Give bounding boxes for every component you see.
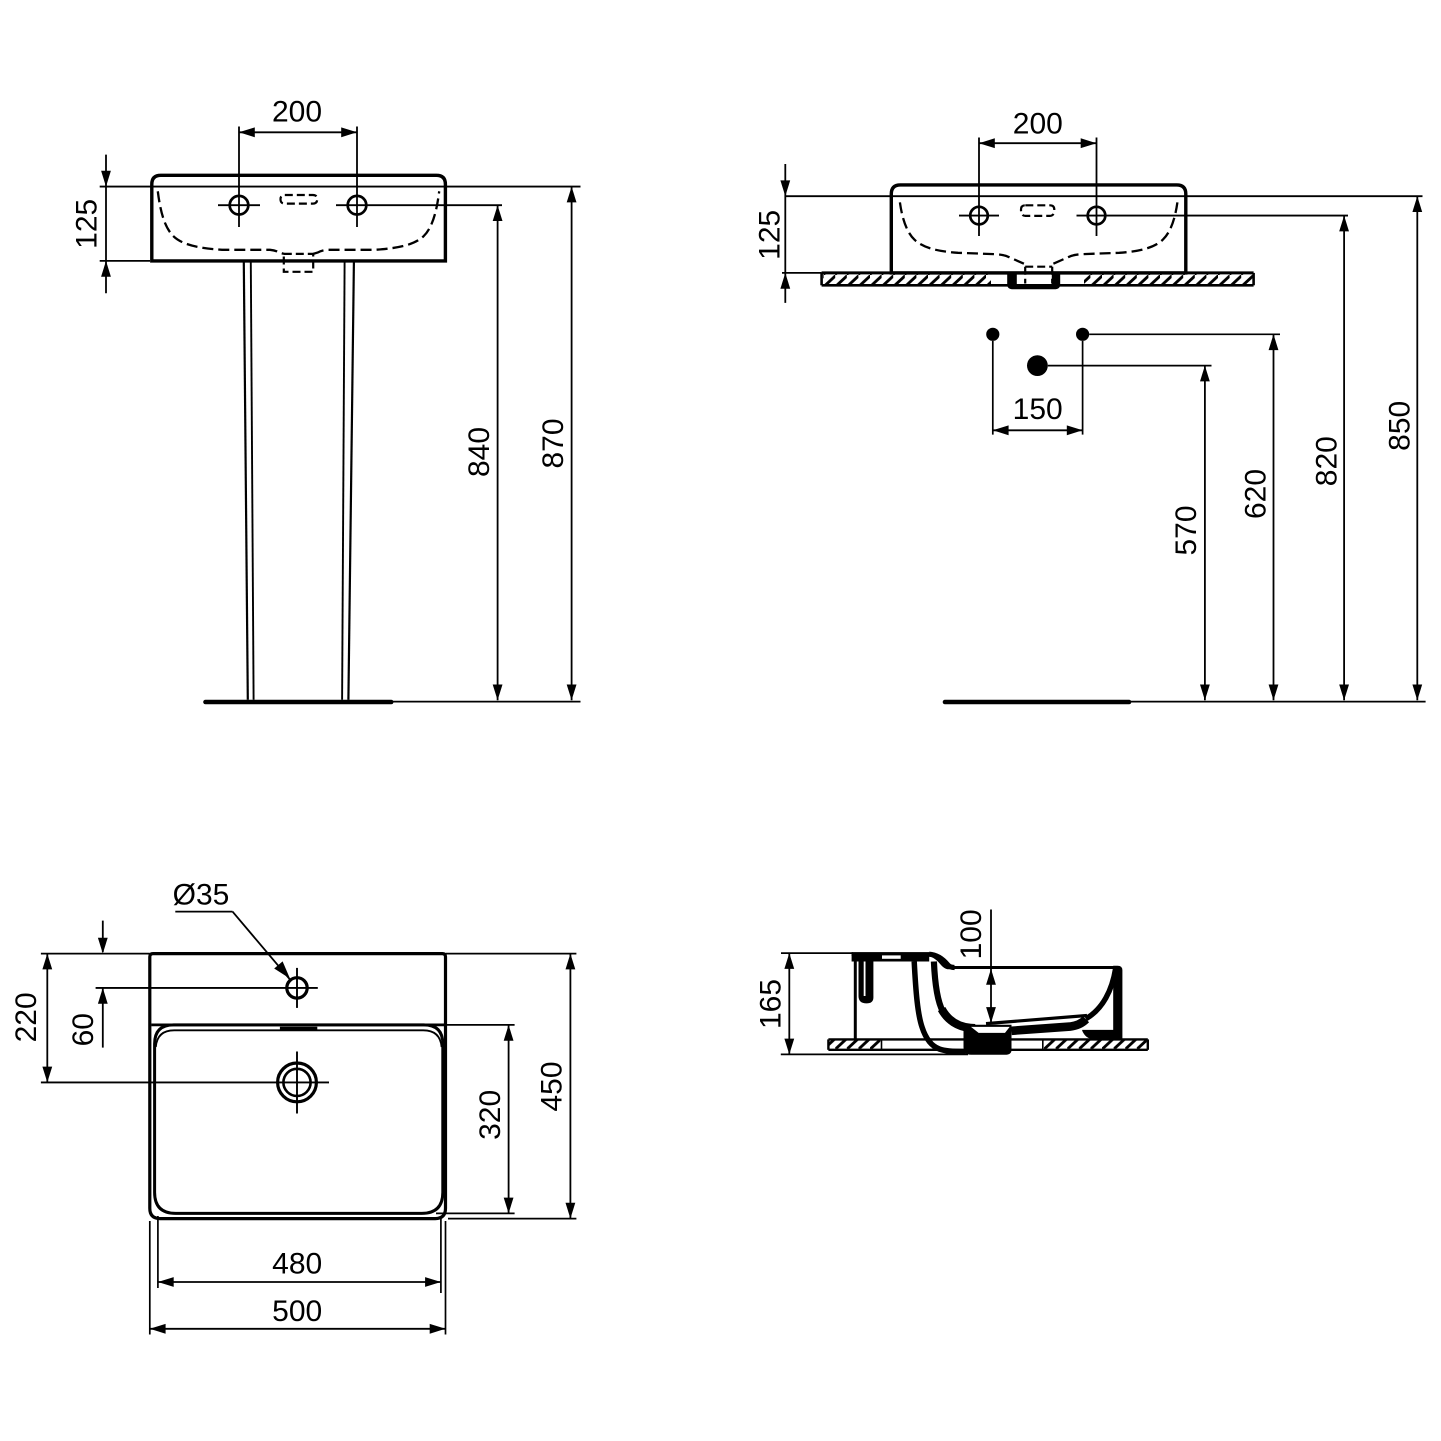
svg-text:570: 570 — [1170, 505, 1203, 555]
svg-text:125: 125 — [754, 210, 787, 260]
svg-text:620: 620 — [1239, 469, 1272, 519]
svg-text:850: 850 — [1383, 401, 1416, 451]
svg-text:200: 200 — [272, 95, 322, 128]
svg-text:220: 220 — [10, 992, 43, 1042]
svg-text:100: 100 — [955, 909, 988, 959]
svg-text:870: 870 — [537, 418, 570, 468]
svg-text:Ø35: Ø35 — [173, 879, 230, 912]
svg-text:125: 125 — [71, 199, 104, 249]
svg-text:320: 320 — [474, 1090, 507, 1140]
svg-text:500: 500 — [272, 1295, 322, 1328]
svg-text:480: 480 — [272, 1247, 322, 1280]
svg-text:200: 200 — [1013, 108, 1063, 141]
svg-text:60: 60 — [67, 1013, 100, 1046]
svg-text:450: 450 — [536, 1061, 569, 1111]
svg-text:820: 820 — [1310, 436, 1343, 486]
svg-text:150: 150 — [1013, 393, 1063, 426]
svg-text:165: 165 — [755, 979, 788, 1029]
svg-text:840: 840 — [463, 427, 496, 477]
